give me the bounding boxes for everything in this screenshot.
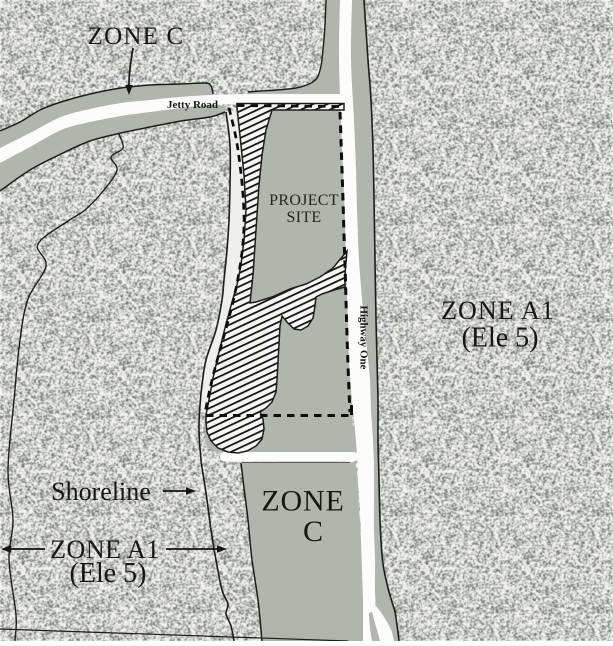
svg-text:Highway One: Highway One [358,306,370,370]
svg-text:ZONE C: ZONE C [88,23,185,50]
svg-text:ZONE A1: ZONE A1 [441,296,555,325]
svg-text:Shoreline: Shoreline [51,477,151,506]
svg-text:PROJECT: PROJECT [269,192,339,209]
svg-text:(Ele 5): (Ele 5) [462,323,539,354]
svg-text:(Ele 5): (Ele 5) [70,558,147,589]
svg-text:ZONE: ZONE [261,485,344,518]
svg-text:SITE: SITE [287,209,322,226]
svg-text:C: C [303,515,323,548]
svg-text:Jetty Road: Jetty Road [167,99,218,111]
